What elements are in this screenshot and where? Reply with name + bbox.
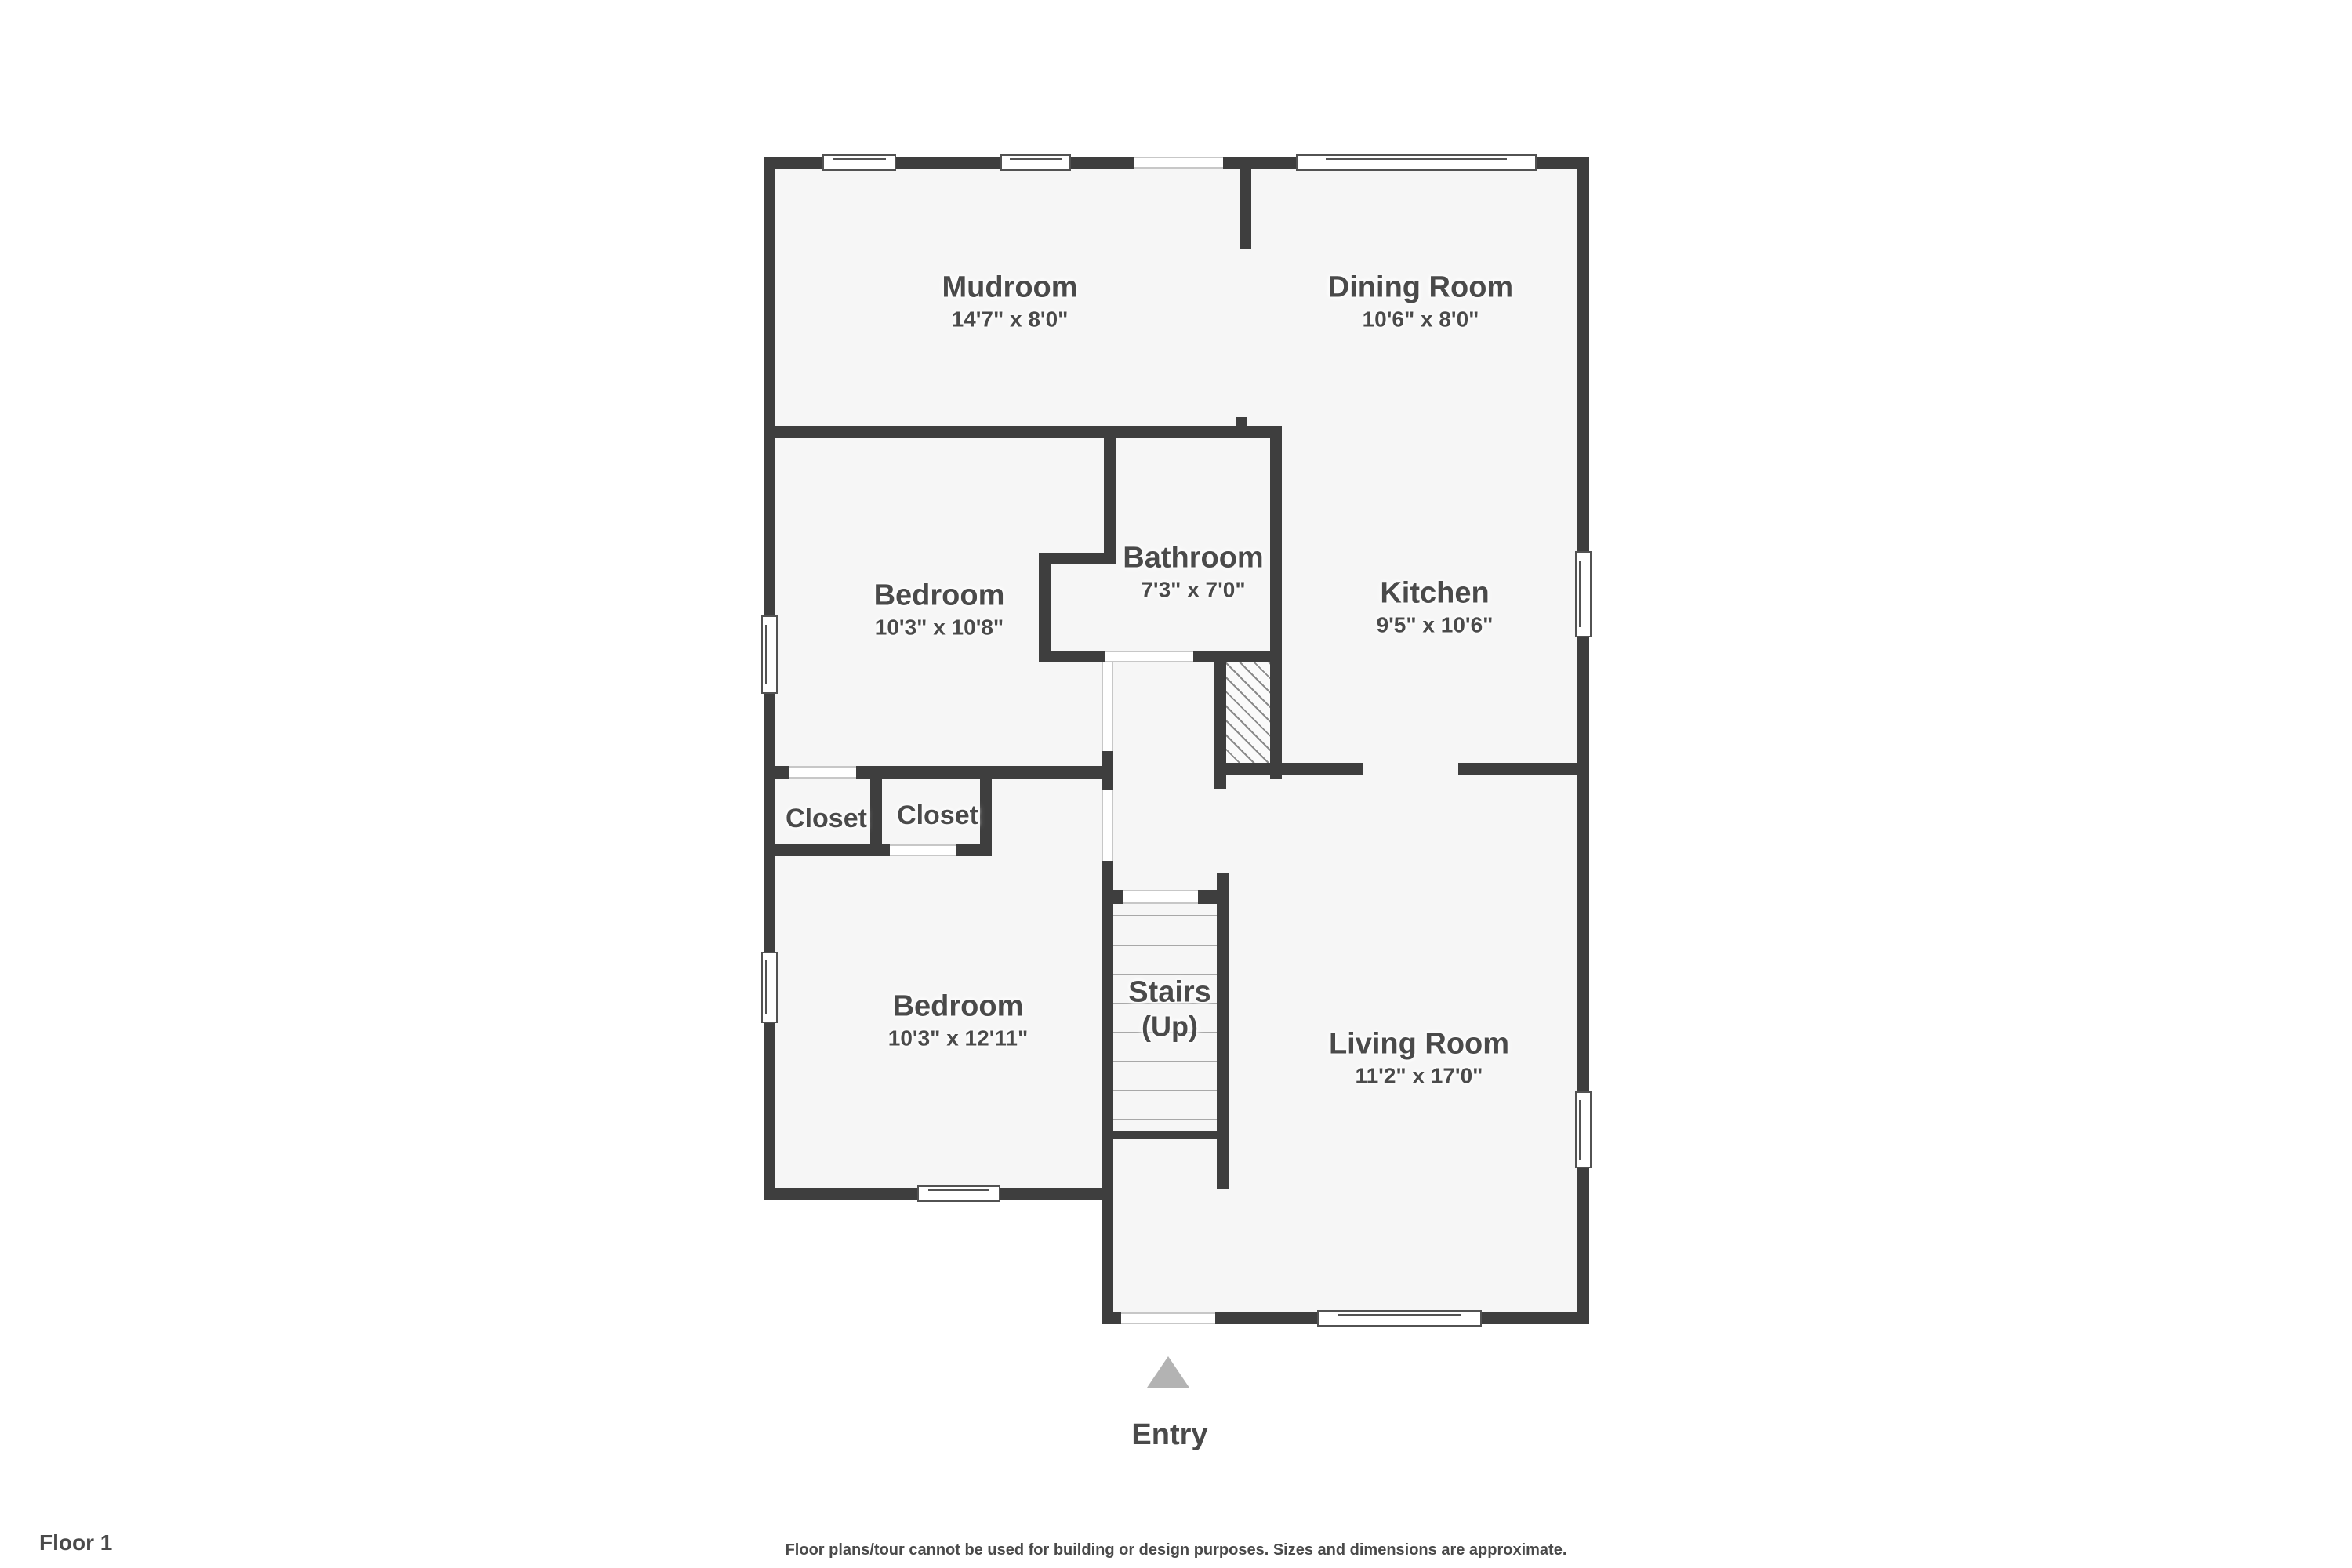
wall [1102, 751, 1113, 790]
room-name: Living Room [1329, 1027, 1509, 1062]
room-label-dining: Dining Room 10'6" x 8'0" [1328, 270, 1513, 334]
room-dims: 9'5" x 10'6" [1377, 611, 1494, 640]
door-opening [1105, 651, 1193, 662]
wall [764, 844, 992, 856]
wall [1113, 890, 1123, 904]
stairs-direction: (Up) [1142, 1010, 1198, 1044]
room-label-bathroom: Bathroom 7'3" x 7'0" [1123, 541, 1263, 604]
window [822, 154, 896, 171]
floor-plan: Mudroom 14'7" x 8'0" Dining Room 10'6" x… [0, 0, 2352, 1568]
entry-text: Entry [1131, 1417, 1207, 1452]
stair-tread [1113, 1090, 1217, 1091]
window [1317, 1310, 1482, 1327]
room-name: Stairs [1128, 975, 1211, 1010]
wall [1214, 763, 1363, 775]
room-label-bedroom2: Bedroom 10'3" x 12'11" [888, 989, 1028, 1053]
room-name: Closet [786, 801, 867, 836]
room-dims: 14'7" x 8'0" [952, 305, 1069, 334]
wall [1217, 873, 1229, 1189]
room-label-closet-left: Closet [786, 801, 867, 836]
room-name: Dining Room [1328, 270, 1513, 305]
door-opening [1121, 1312, 1215, 1324]
wall [1102, 861, 1113, 1312]
door-opening [1123, 890, 1198, 904]
room-dims: 11'2" x 17'0" [1356, 1062, 1483, 1091]
stair-tread [1113, 945, 1217, 946]
room-name: Bedroom [874, 579, 1005, 613]
door-opening [890, 844, 956, 856]
entry-arrow-icon [1147, 1356, 1189, 1388]
room-label-closet-right: Closet [897, 798, 978, 833]
door-opening [1102, 790, 1113, 861]
wall [1236, 417, 1247, 426]
room-name: Mudroom [942, 270, 1077, 305]
room-label-kitchen: Kitchen 9'5" x 10'6" [1377, 576, 1494, 640]
window [1575, 551, 1592, 637]
wall [1104, 438, 1116, 564]
door-opening [1134, 157, 1223, 169]
door-opening [789, 766, 856, 779]
window [917, 1185, 1000, 1202]
entry-label: Entry [1131, 1417, 1207, 1452]
room-label-bedroom1: Bedroom 10'3" x 10'8" [874, 579, 1005, 642]
wall [1113, 1131, 1217, 1139]
room-dims: 10'3" x 10'8" [875, 613, 1004, 642]
room-label-living: Living Room 11'2" x 17'0" [1329, 1027, 1509, 1091]
door-opening [1102, 662, 1113, 751]
stair-tread [1113, 1119, 1217, 1120]
room-label-stairs: Stairs (Up) [1128, 975, 1211, 1044]
room-name: Bedroom [893, 989, 1024, 1024]
hatch-area [1226, 662, 1270, 763]
stair-tread [1113, 915, 1217, 916]
room-dims: 10'6" x 8'0" [1363, 305, 1479, 334]
window [761, 952, 778, 1023]
window [1000, 154, 1071, 171]
room-label-mudroom: Mudroom 14'7" x 8'0" [942, 270, 1077, 334]
wall [1198, 890, 1217, 904]
room-dims: 7'3" x 7'0" [1141, 575, 1245, 604]
wall [1039, 553, 1051, 662]
wall [1270, 426, 1282, 779]
disclaimer-text: Floor plans/tour cannot be used for buil… [0, 1541, 2352, 1559]
wall [1240, 157, 1251, 249]
window [761, 615, 778, 694]
wall [1458, 763, 1577, 775]
wall [764, 426, 1282, 438]
room-name: Closet [897, 798, 978, 833]
window [1575, 1091, 1592, 1168]
stair-tread [1113, 1061, 1217, 1062]
window [1296, 154, 1537, 171]
room-name: Kitchen [1380, 576, 1489, 611]
room-dims: 10'3" x 12'11" [888, 1024, 1028, 1053]
room-name: Bathroom [1123, 541, 1263, 575]
